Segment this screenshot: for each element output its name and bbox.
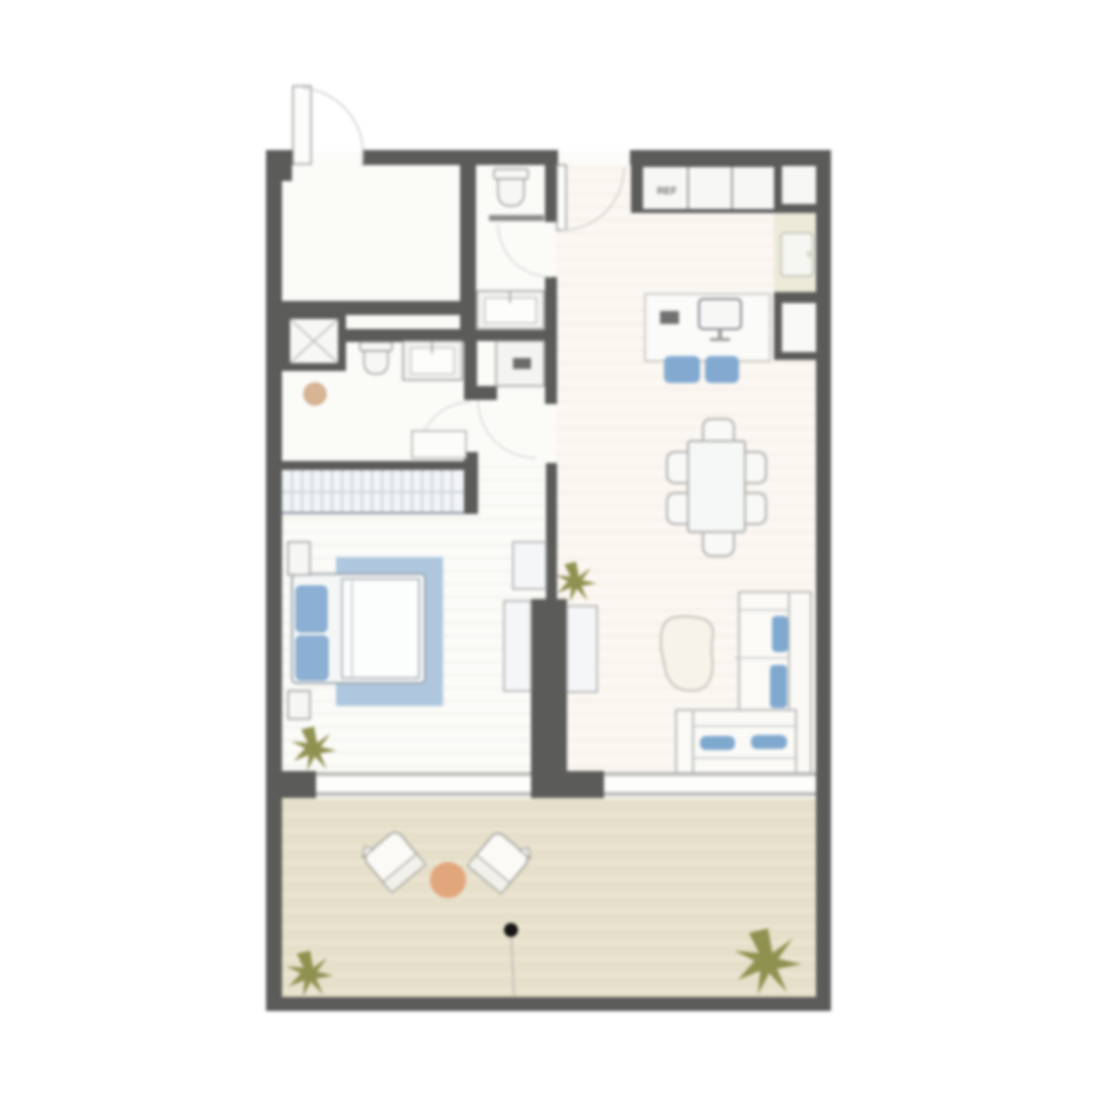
svg-text:REF: REF: [657, 186, 677, 197]
